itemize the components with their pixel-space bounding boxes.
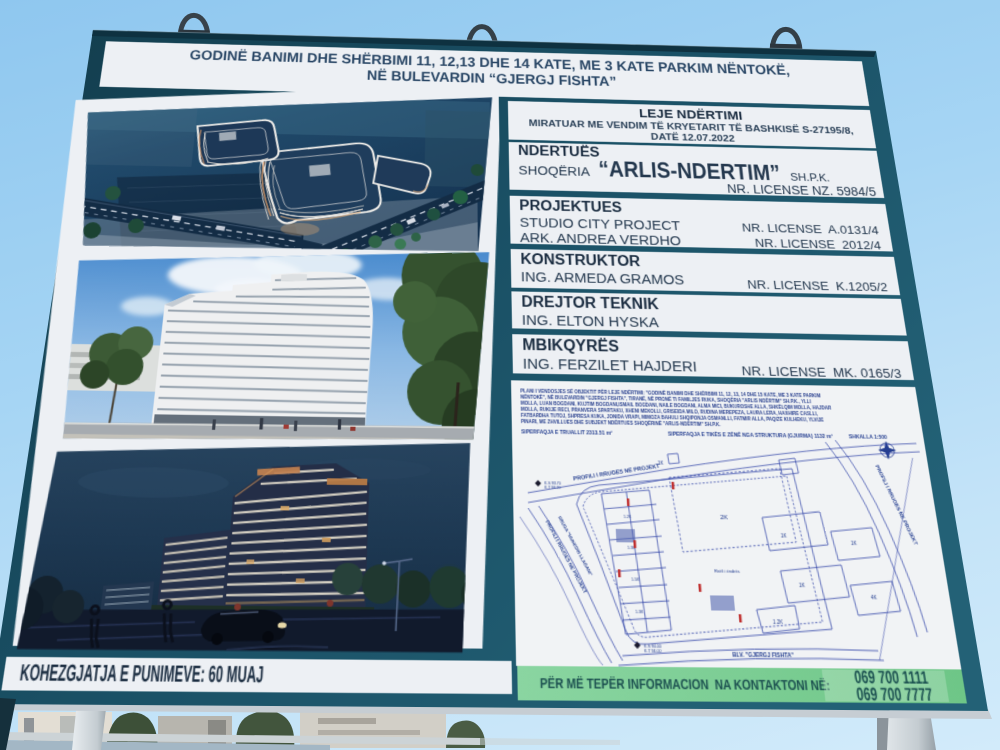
svg-text:SIPERFAQJA E TIKËS E ZËNË NGA: SIPERFAQJA E TIKËS E ZËNË NGA STRUKTURA … xyxy=(668,431,834,440)
svg-text:K.T 93.20: K.T 93.20 xyxy=(544,485,561,490)
svg-text:SIPERFAQJA E TRUALLIT 2313.51: SIPERFAQJA E TRUALLIT 2313.51 m² xyxy=(521,429,613,436)
svg-text:PROFILI I RRUGES NE PROJEKT: PROFILI I RRUGES NE PROJEKT xyxy=(573,463,661,482)
svg-text:1.3K: 1.3K xyxy=(635,609,643,615)
svg-text:BLV. "GJERGJ FISHTA": BLV. "GJERGJ FISHTA" xyxy=(732,651,794,659)
svg-text:SHKALLA 1:500: SHKALLA 1:500 xyxy=(848,433,888,440)
svg-text:1K: 1K xyxy=(851,541,858,546)
svg-text:4K: 4K xyxy=(871,595,878,600)
svg-text:2K: 2K xyxy=(720,514,729,522)
svg-text:K.T 94.00: K.T 94.00 xyxy=(644,648,662,654)
svg-text:PROFILI I RRUGES NE PROJEKT: PROFILI I RRUGES NE PROJEKT xyxy=(874,464,919,546)
svg-text:1K: 1K xyxy=(799,583,806,588)
svg-text:1K: 1K xyxy=(781,534,788,539)
svg-text:Rrëfi i ëndrës: Rrëfi i ëndrës xyxy=(714,569,740,575)
svg-text:1.2K: 1.2K xyxy=(773,620,784,626)
svg-text:1.5K: 1.5K xyxy=(631,577,639,582)
svg-text:1.2K: 1.2K xyxy=(623,514,631,519)
